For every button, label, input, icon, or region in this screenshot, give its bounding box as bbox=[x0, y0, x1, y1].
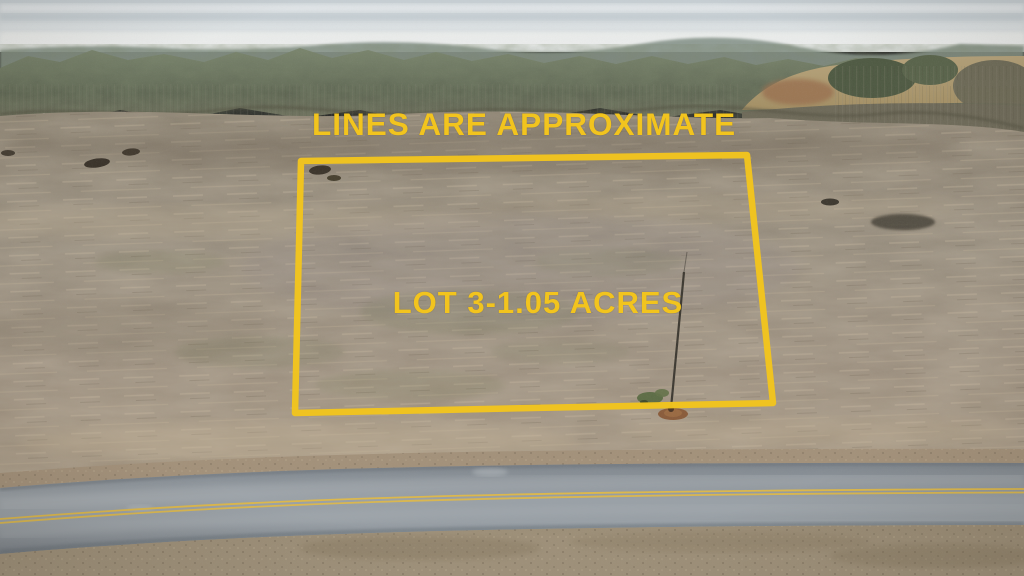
disclaimer-text: LINES ARE APPROXIMATE bbox=[312, 109, 724, 141]
lot-label-text: LOT 3-1.05 ACRES bbox=[383, 287, 693, 318]
aerial-lot-photo: LINES ARE APPROXIMATE LOT 3-1.05 ACRES bbox=[0, 0, 1024, 576]
